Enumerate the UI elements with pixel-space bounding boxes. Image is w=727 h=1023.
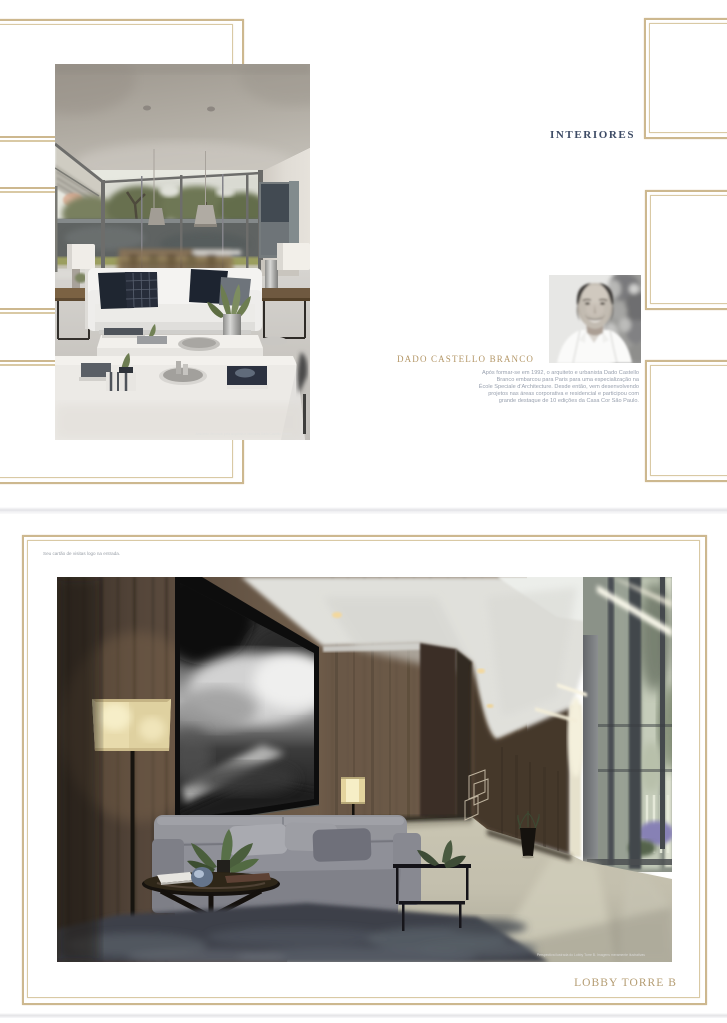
svg-text:Perspectiva ilustrada do Lobby: Perspectiva ilustrada do Lobby Torre B. … <box>537 953 645 957</box>
svg-text:Ambiente decorado pela arquite: Ambiente decorado pela arquiteta e inter… <box>196 432 293 436</box>
